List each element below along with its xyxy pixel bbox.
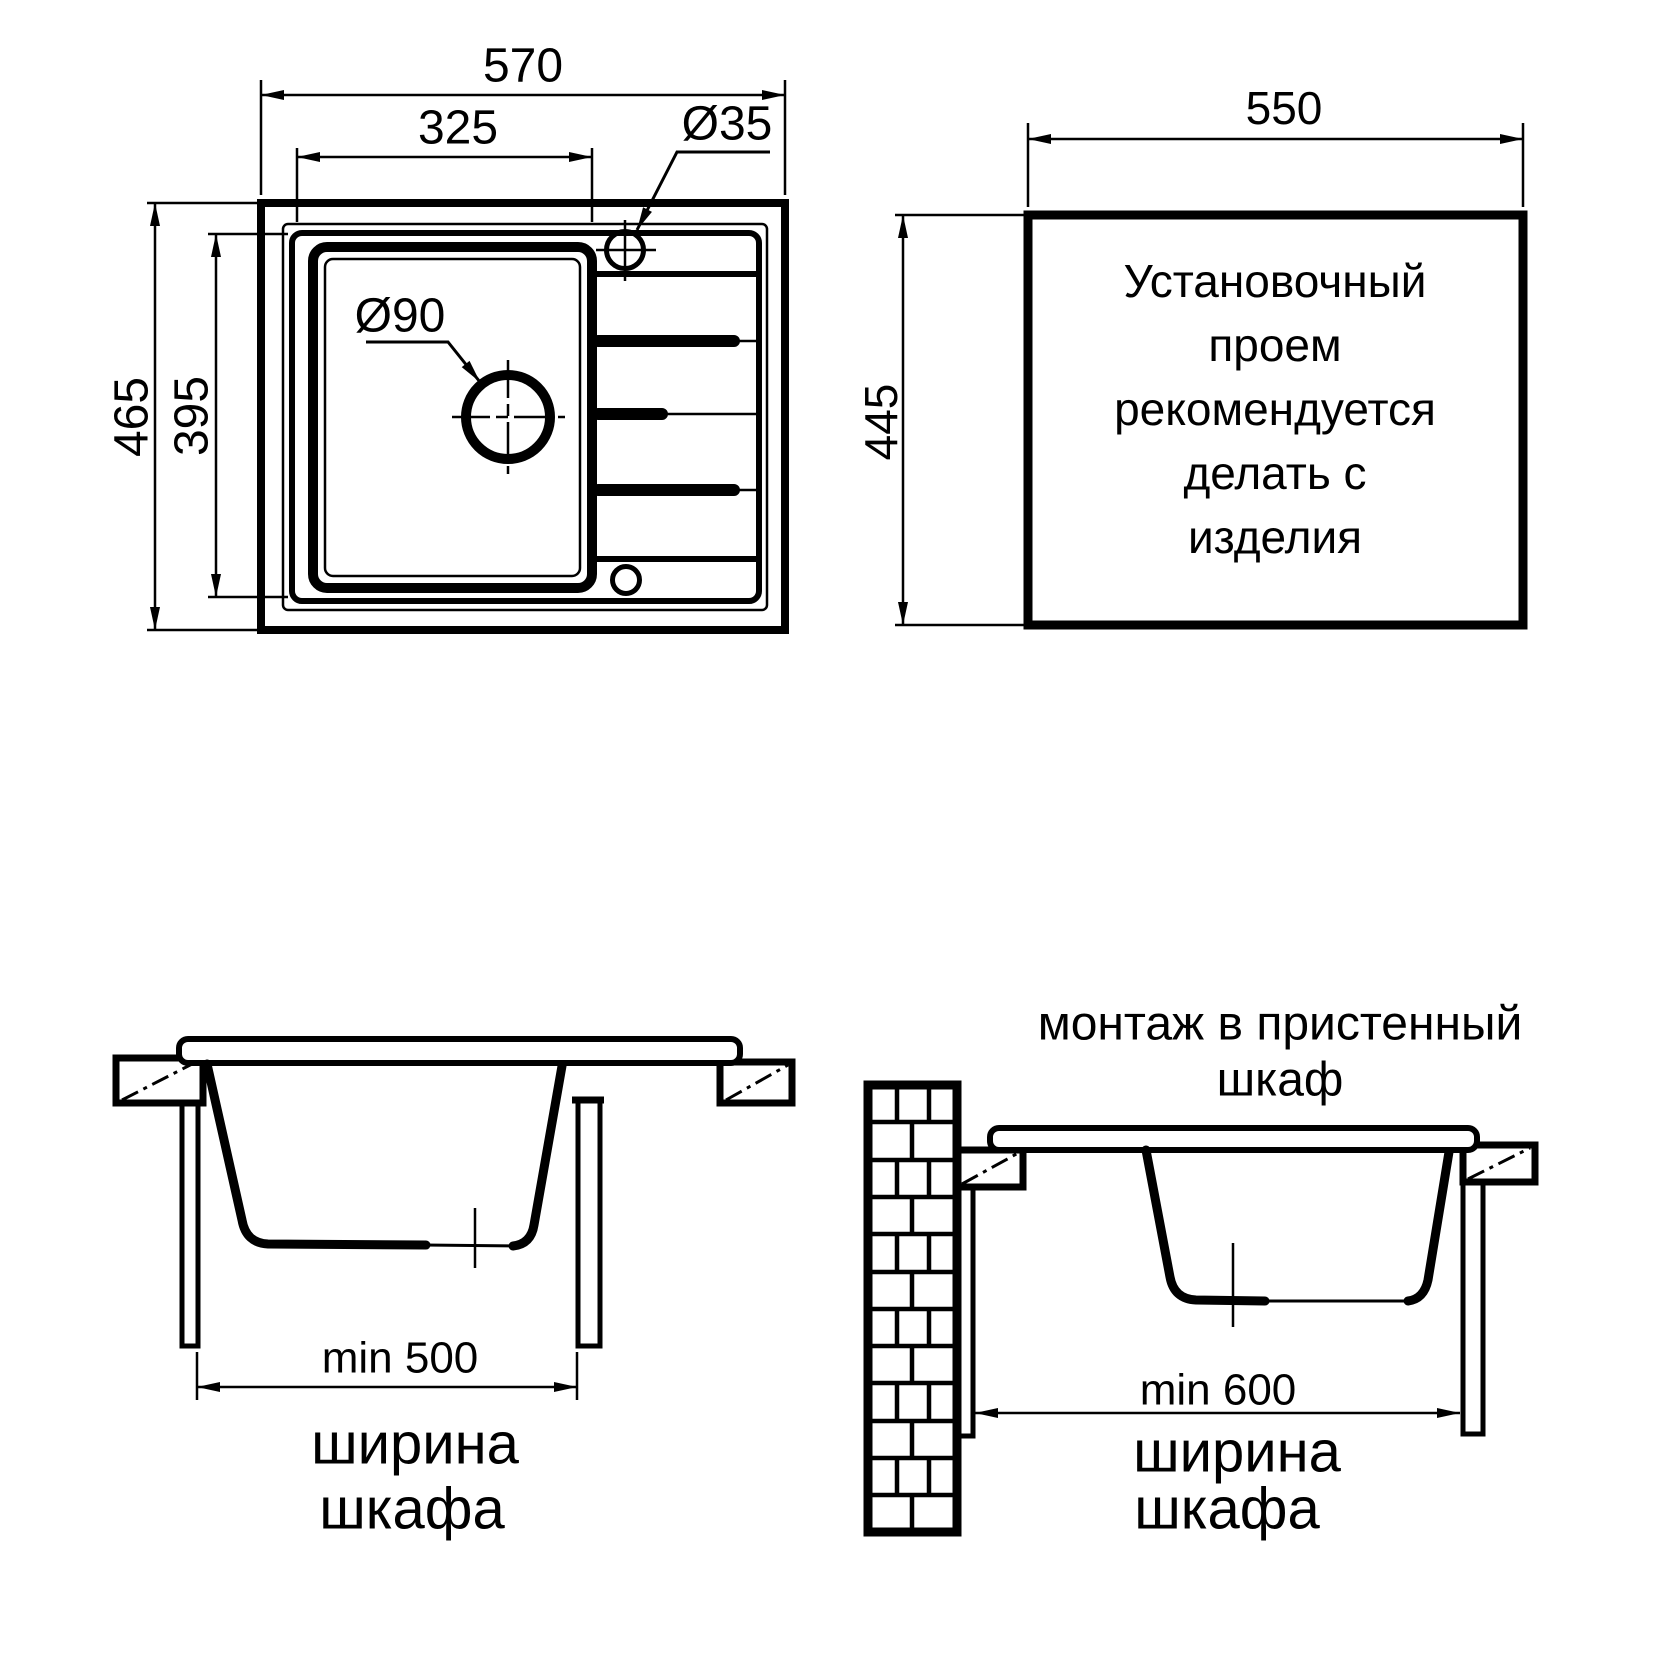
- faucet-hole-leader: [637, 152, 770, 230]
- caption-line: ширина: [1133, 1420, 1342, 1485]
- cabinet-left-wall: [957, 1187, 973, 1436]
- wall-mount-title-line: шкаф: [1217, 1054, 1344, 1107]
- brick-wall: [868, 1085, 957, 1532]
- dim-550-extensions: [1028, 123, 1523, 207]
- caption-line: ширина: [311, 1412, 520, 1477]
- caption-line: шкафа: [1134, 1477, 1320, 1542]
- bowl-section-right: [513, 1066, 562, 1246]
- dim-550-label: 550: [1246, 82, 1323, 134]
- bowl-section-left: [1146, 1150, 1265, 1301]
- faucet-hole-label: Ø35: [682, 98, 773, 151]
- figure-section-base-cabinet: min 500 ширина шкафа: [116, 1039, 792, 1542]
- countertop-right-centermark: [1468, 1148, 1530, 1179]
- figure-top-view: 570 325 Ø35 Ø90 465 395: [106, 40, 786, 631]
- bowl-section-left: [207, 1064, 426, 1245]
- countertop-left-centermark: [962, 1152, 1020, 1184]
- dim-min600-label: min 600: [1140, 1366, 1297, 1415]
- overflow-hole: [613, 567, 640, 594]
- wall-mount-title-line: монтаж в пристенный: [1038, 998, 1523, 1051]
- cutout-note-line: делать с: [1183, 447, 1366, 499]
- dim-445-extensions: [895, 215, 1024, 625]
- drain-hole-label: Ø90: [355, 290, 446, 343]
- drainboard-groove-lines: [662, 341, 758, 490]
- bowl-section-right: [1408, 1152, 1449, 1301]
- drain-hole-leader: [366, 342, 480, 382]
- countertop-left-centermark: [122, 1061, 198, 1100]
- dim-325-label: 325: [418, 102, 498, 155]
- cutout-note-line: рекомендуется: [1114, 383, 1436, 435]
- dim-570-label: 570: [483, 40, 563, 93]
- cutout-note-line: проем: [1208, 319, 1341, 371]
- figure-install-cutout: 550 445 Установочный проем рекомендуется…: [855, 82, 1523, 625]
- cutout-note-line: Установочный: [1124, 255, 1427, 307]
- drainboard-grooves: [598, 341, 734, 490]
- sink-technical-drawing: 570 325 Ø35 Ø90 465 395 550 445 Установо…: [0, 0, 1680, 1680]
- cutout-note-line: изделия: [1188, 511, 1362, 563]
- figure-section-wall-cabinet: монтаж в пристенный шкаф min 600 ширина …: [868, 998, 1535, 1542]
- sink-flange-section: [179, 1039, 740, 1063]
- dim-445-label: 445: [855, 384, 907, 461]
- sink-flange-section: [990, 1128, 1477, 1150]
- caption-line: шкафа: [319, 1477, 505, 1542]
- dim-325-extensions: [297, 148, 592, 222]
- cabinet-right-wall: [1463, 1182, 1483, 1434]
- dim-395-label: 395: [166, 376, 219, 456]
- dim-395-extensions: [208, 234, 288, 597]
- bowl-section-bottom-thin: [424, 1245, 515, 1246]
- dim-min500-label: min 500: [322, 1334, 479, 1383]
- countertop-right-centermark: [726, 1065, 788, 1100]
- drawing-sheet: 570 325 Ø35 Ø90 465 395 550 445 Установо…: [0, 0, 1680, 1680]
- cabinet-left-wall: [182, 1103, 198, 1346]
- dim-465-label: 465: [106, 377, 159, 457]
- cabinet-right-wall: [578, 1100, 600, 1346]
